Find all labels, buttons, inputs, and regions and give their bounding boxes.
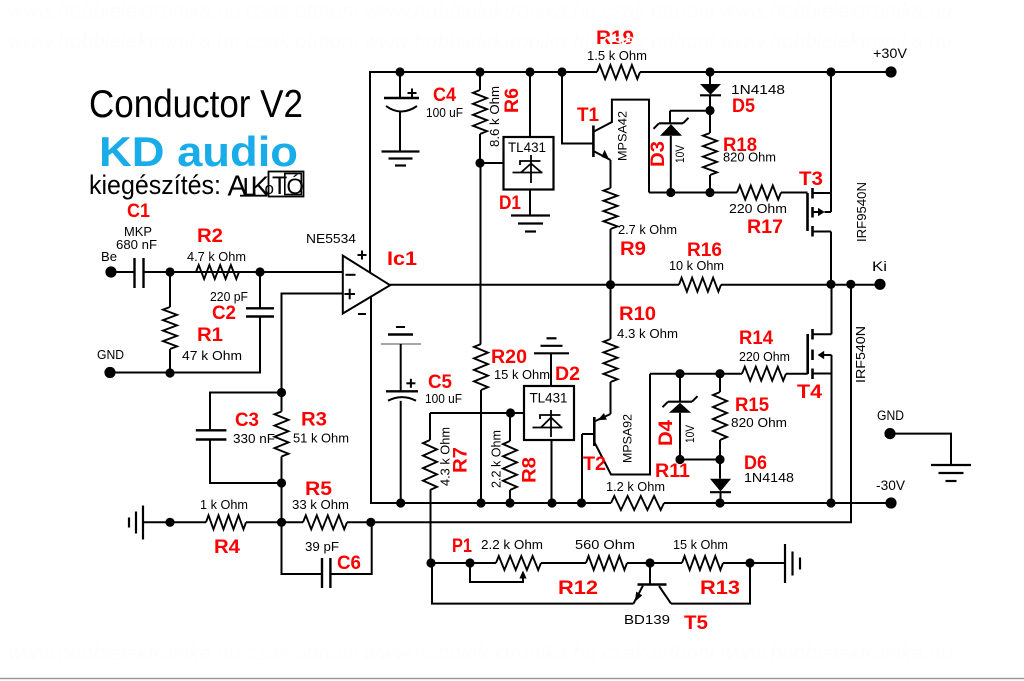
svg-text:4.3 k Ohm: 4.3 k Ohm (439, 427, 453, 486)
svg-text:R15: R15 (735, 395, 769, 416)
svg-text:T4: T4 (797, 382, 822, 403)
svg-text:680 nF: 680 nF (116, 238, 157, 252)
svg-text:R6: R6 (502, 88, 523, 113)
svg-text:R13: R13 (700, 578, 740, 599)
svg-text:R14: R14 (739, 328, 773, 349)
svg-text:D2: D2 (555, 364, 580, 385)
svg-text:10 k Ohm: 10 k Ohm (669, 259, 724, 273)
svg-text:220 pF: 220 pF (210, 290, 248, 304)
svg-text:www.hobbielektronika.hu csak: www.hobbielektronika.hu csak otthoni www… (8, 0, 953, 23)
svg-text:IRF540N: IRF540N (854, 326, 868, 383)
svg-text:T1: T1 (577, 105, 599, 126)
svg-text:T2: T2 (583, 454, 606, 475)
svg-text:1.2 k Ohm: 1.2 k Ohm (606, 480, 665, 494)
svg-text:R7: R7 (451, 447, 472, 473)
svg-text:39 pF: 39 pF (305, 540, 339, 554)
svg-text:10V: 10V (683, 425, 697, 443)
svg-text:2.2 k Ohm: 2.2 k Ohm (490, 430, 504, 488)
svg-text:D1: D1 (499, 193, 521, 214)
svg-text:100 uF: 100 uF (426, 106, 463, 120)
svg-text:D4: D4 (656, 420, 677, 446)
svg-text:GND: GND (97, 347, 124, 362)
svg-text:33 k Ohm: 33 k Ohm (292, 498, 349, 512)
svg-text:R4: R4 (214, 537, 240, 558)
svg-text:C3: C3 (235, 410, 259, 431)
svg-text:NE5534: NE5534 (306, 231, 356, 246)
svg-text:C1: C1 (127, 201, 150, 222)
svg-text:4.7 k Ohm: 4.7 k Ohm (187, 250, 246, 264)
svg-text:R12: R12 (558, 578, 598, 599)
svg-text:TL431: TL431 (530, 391, 568, 406)
svg-text:R8: R8 (520, 457, 541, 483)
svg-text:C5: C5 (428, 372, 452, 393)
svg-text:T3: T3 (799, 169, 823, 190)
svg-text:100 uF: 100 uF (425, 392, 462, 406)
svg-text:R17: R17 (747, 217, 783, 238)
svg-text:10V: 10V (673, 145, 687, 163)
svg-text:15 k Ohm: 15 k Ohm (673, 538, 728, 552)
svg-text:R10: R10 (619, 304, 656, 325)
svg-text:-30V: -30V (876, 478, 905, 493)
svg-text:Ki: Ki (872, 259, 887, 274)
svg-text:MKP: MKP (124, 225, 152, 239)
svg-text:P1: P1 (452, 536, 472, 557)
svg-text:4.3 k Ohm: 4.3 k Ohm (617, 327, 678, 341)
svg-text:D3: D3 (648, 141, 669, 167)
svg-text:330 nF: 330 nF (233, 432, 275, 446)
svg-text:KD audio: KD audio (99, 128, 298, 175)
svg-text:BD139: BD139 (624, 613, 670, 627)
svg-text:R3: R3 (301, 410, 327, 431)
svg-text:51 k Ohm: 51 k Ohm (293, 432, 349, 446)
svg-text:1 k Ohm: 1 k Ohm (200, 498, 248, 512)
svg-text:15 k Ohm: 15 k Ohm (494, 368, 550, 382)
svg-text:kiegészítés:: kiegészítés: (89, 170, 221, 200)
svg-text:MPSA92: MPSA92 (621, 414, 635, 463)
svg-text:C4: C4 (433, 85, 456, 106)
svg-text:D5: D5 (732, 96, 755, 117)
svg-text:R5: R5 (305, 479, 332, 500)
svg-text:R16: R16 (687, 240, 722, 261)
svg-text:2.7 k Ohm: 2.7 k Ohm (618, 223, 677, 237)
svg-text:47 k Ohm: 47 k Ohm (182, 349, 242, 363)
svg-text:C2: C2 (212, 303, 236, 324)
svg-text:1N4148: 1N4148 (744, 471, 794, 485)
svg-text:820 Ohm: 820 Ohm (731, 416, 787, 430)
svg-text:GND: GND (877, 408, 904, 423)
svg-text:C6: C6 (337, 553, 361, 574)
svg-text:R20: R20 (491, 347, 527, 368)
svg-text:560 Ohm: 560 Ohm (575, 538, 635, 552)
svg-text:T5: T5 (684, 613, 708, 634)
svg-text:IRF9540N: IRF9540N (855, 182, 869, 242)
svg-text:Ic1: Ic1 (387, 249, 417, 270)
svg-text:MPSA42: MPSA42 (616, 111, 630, 161)
svg-text:TL431: TL431 (508, 140, 546, 155)
svg-text:Be: Be (101, 249, 117, 264)
svg-text:R9: R9 (620, 239, 646, 260)
svg-text:R1: R1 (197, 325, 223, 346)
svg-text:R2: R2 (197, 226, 223, 247)
svg-text:8.6 k Ohm: 8.6 k Ohm (488, 86, 502, 147)
svg-text:Conductor V2: Conductor V2 (89, 83, 303, 126)
svg-text:220 Ohm: 220 Ohm (739, 350, 790, 364)
svg-text:1N4148: 1N4148 (731, 83, 785, 97)
svg-text:www.hobbielektronika.hu csak: www.hobbielektronika.hu csak otthoni www… (8, 642, 953, 665)
svg-text:820 Ohm: 820 Ohm (723, 151, 776, 165)
svg-text:2.2 k Ohm: 2.2 k Ohm (481, 538, 543, 552)
svg-text:R11: R11 (655, 461, 690, 482)
svg-text:220 Ohm: 220 Ohm (729, 202, 787, 216)
svg-text:www.hobbielektronika.hu csak: www.hobbielektronika.hu csak otthoni www… (8, 30, 953, 53)
